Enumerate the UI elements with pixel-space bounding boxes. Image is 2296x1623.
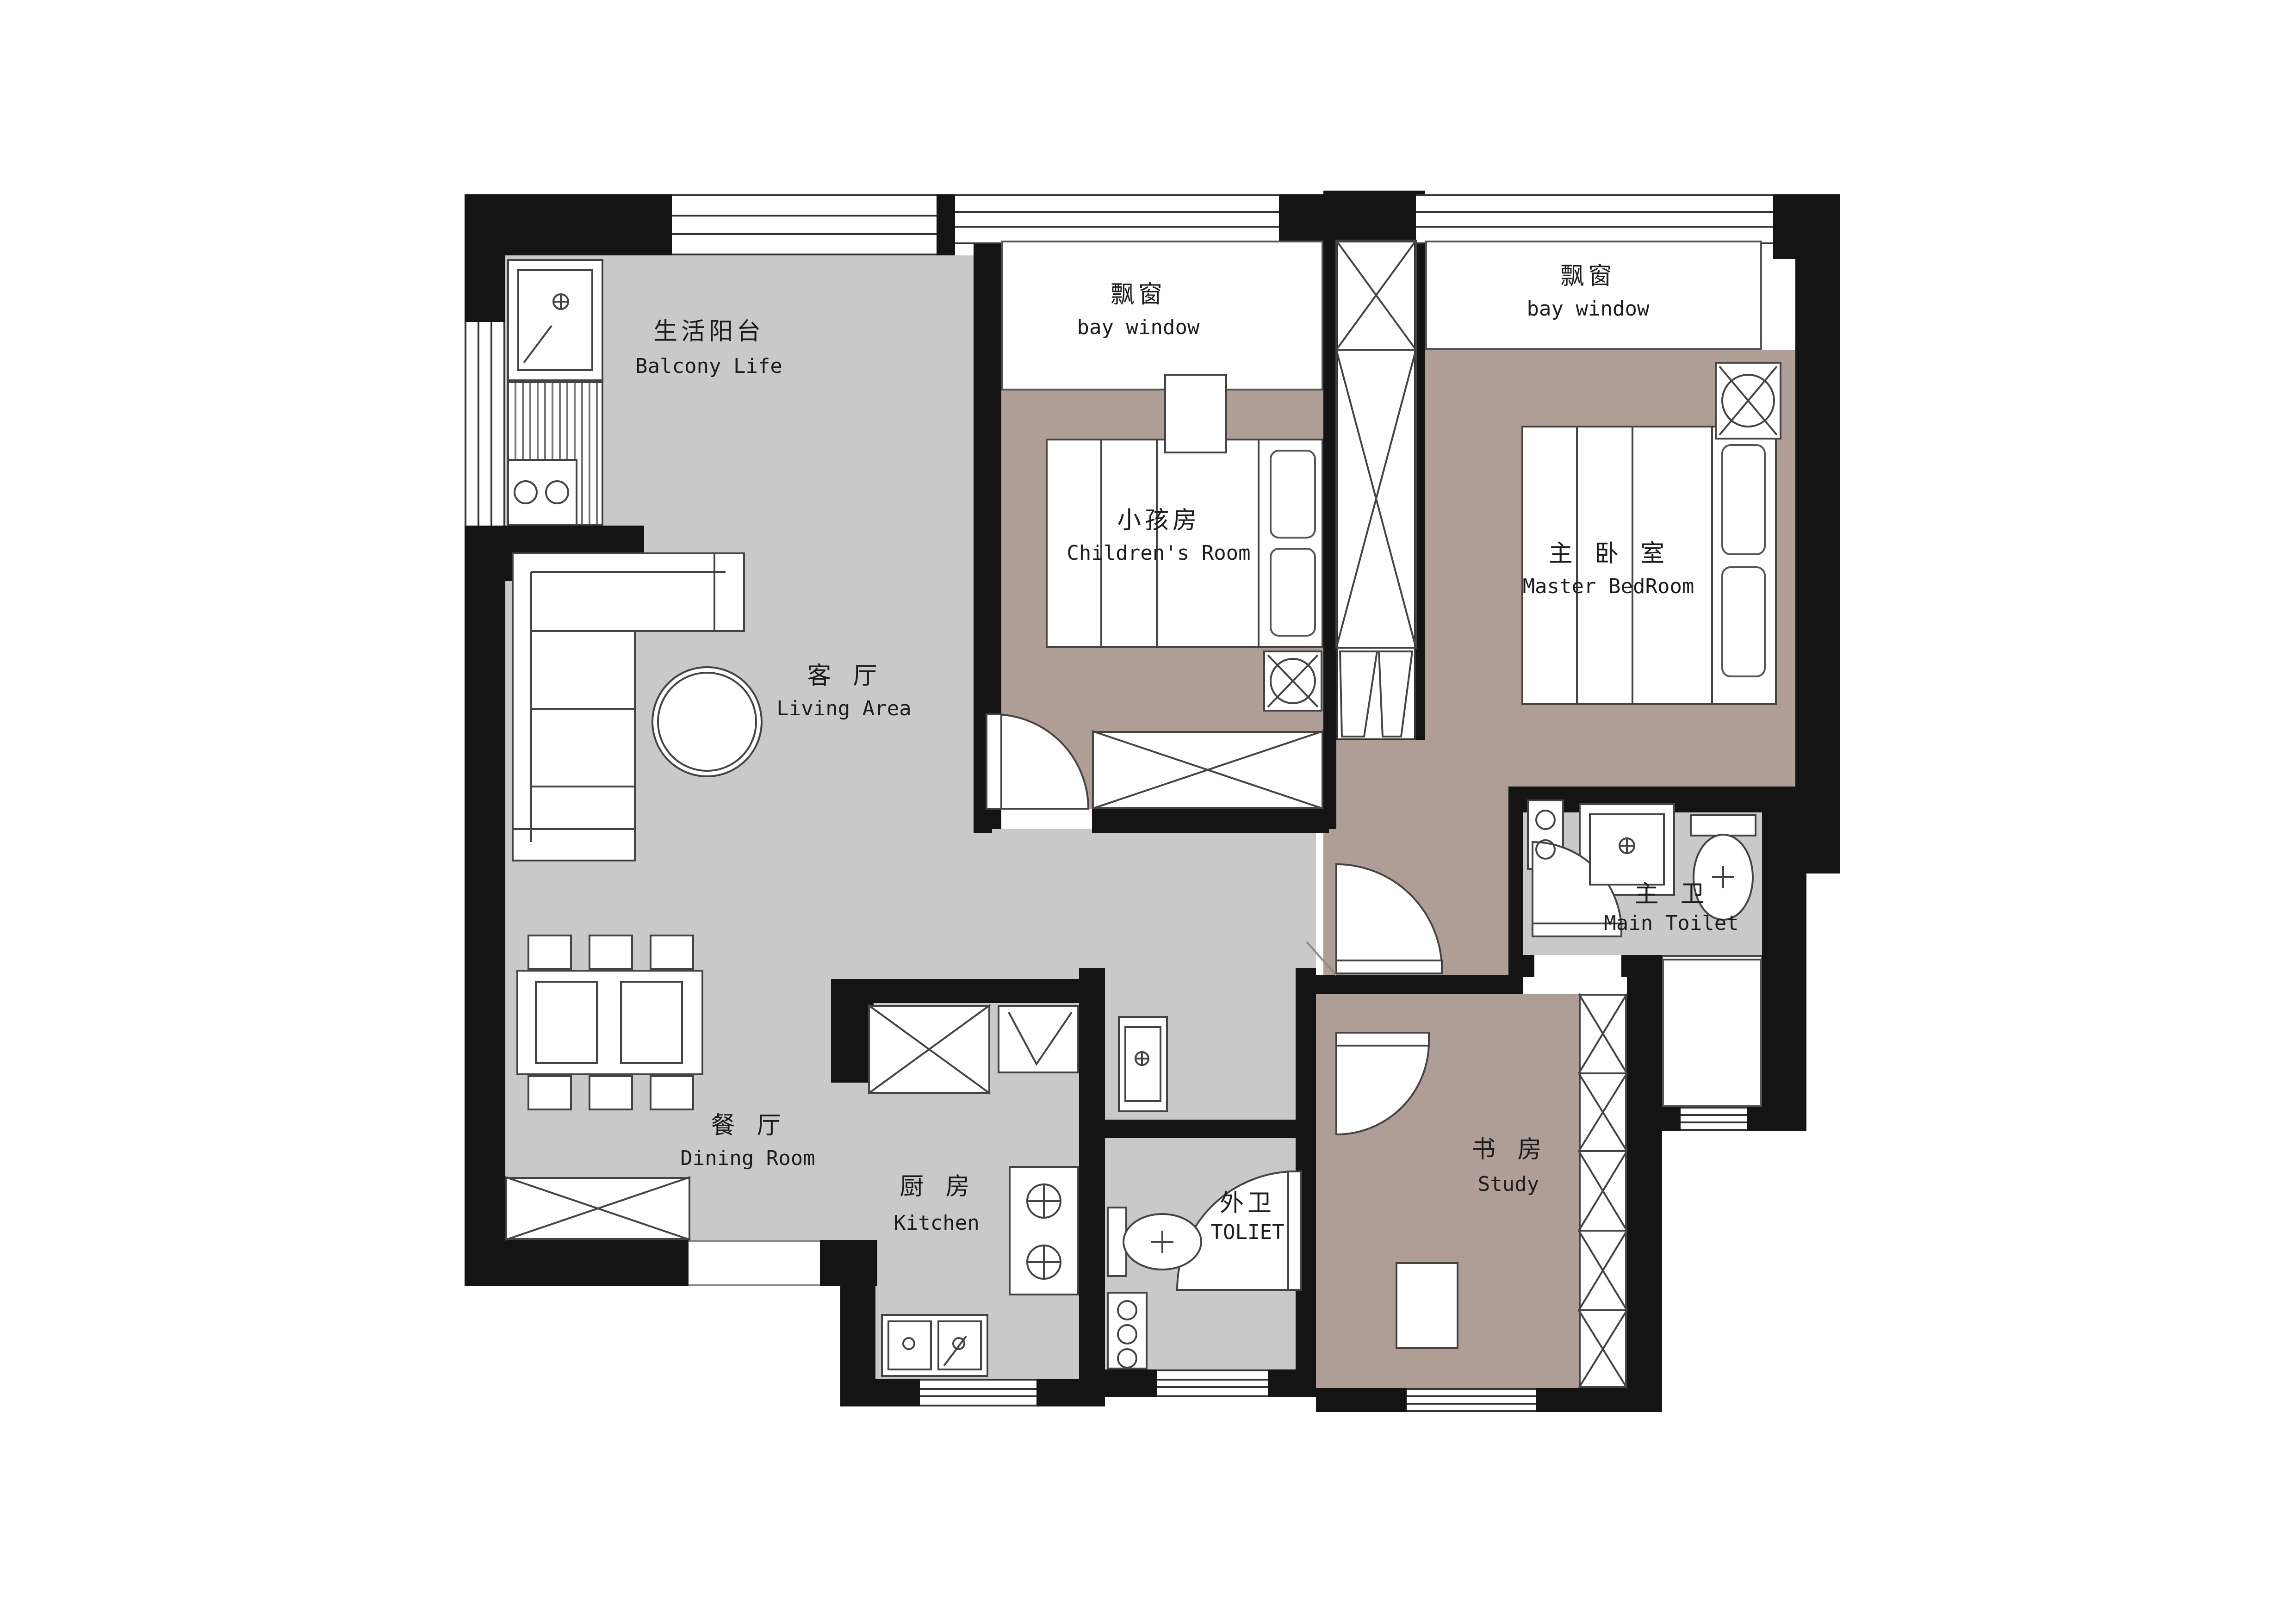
- wardrobe-cross: [1092, 731, 1323, 809]
- gas-stove-small-burners: [515, 481, 568, 503]
- room-label-kitchen-en: Kitchen: [894, 1213, 979, 1233]
- room-label-balcony-zh: 生活阳台: [653, 321, 764, 345]
- washer-column-knobs: [1118, 1301, 1136, 1368]
- room-label-master-zh: 主 卧 室: [1549, 543, 1669, 567]
- kitchen-sink-detail: [888, 1321, 981, 1369]
- kitchen-stove-burners: [1027, 1184, 1061, 1279]
- room-label-children-en: Children's Room: [1067, 543, 1250, 564]
- room-label-dining-en: Dining Room: [680, 1148, 815, 1169]
- bookshelf-cells: [1579, 994, 1627, 1388]
- room-label-dining-zh: 餐 厅: [711, 1115, 784, 1139]
- room-label-outer-toilet-en: TOLIET: [1211, 1222, 1285, 1243]
- room-label-main-toilet-zh: 主 卫: [1634, 884, 1708, 908]
- refrigerator-cross: [868, 1005, 990, 1094]
- air-conditioner-icon: [1716, 363, 1781, 439]
- room-label-outer-toilet-zh: 外卫: [1220, 1193, 1275, 1217]
- sideboard-cross: [505, 1177, 690, 1240]
- sliding-wardrobe: [1340, 651, 1412, 737]
- room-label-bay-master-en: bay window: [1527, 299, 1650, 319]
- room-label-kitchen-zh: 厨 房: [900, 1176, 973, 1200]
- duct-shaft-cross: [1336, 241, 1416, 648]
- wash-basin-detail: [1590, 814, 1664, 885]
- kitchen-cabinet-diagonal: [1009, 1012, 1072, 1064]
- wash-basin-vanity-detail: [1125, 1027, 1160, 1101]
- room-label-study-en: Study: [1478, 1174, 1539, 1195]
- room-label-study-zh: 书 房: [1471, 1139, 1545, 1163]
- room-label-bay-children-en: bay window: [1077, 317, 1200, 338]
- room-label-living-zh: 客 厅: [807, 665, 881, 689]
- floor-transition-line: [1307, 942, 1336, 975]
- door-children-room: [987, 714, 1088, 809]
- toilet-bowl: [1123, 1214, 1201, 1270]
- room-label-balcony-en: Balcony Life: [635, 356, 782, 377]
- sofa: [513, 553, 744, 861]
- room-label-bay-master-zh: 飘窗: [1560, 266, 1616, 290]
- room-label-main-toilet-en: Main Toilet: [1604, 913, 1738, 934]
- laundry-sink-detail: [518, 270, 592, 370]
- door-master-hall: [1336, 864, 1442, 973]
- floor-plan: 生活阳台 Balcony Life 飘窗 bay window 飘窗 bay w…: [0, 0, 2296, 1623]
- room-label-children-zh: 小孩房: [1117, 510, 1200, 534]
- room-label-living-en: Living Area: [776, 699, 911, 719]
- room-label-master-en: Master BedRoom: [1523, 576, 1694, 597]
- room-label-bay-children-zh: 飘窗: [1111, 284, 1166, 308]
- air-conditioner-icon: [1264, 651, 1322, 711]
- door-study: [1336, 1033, 1429, 1134]
